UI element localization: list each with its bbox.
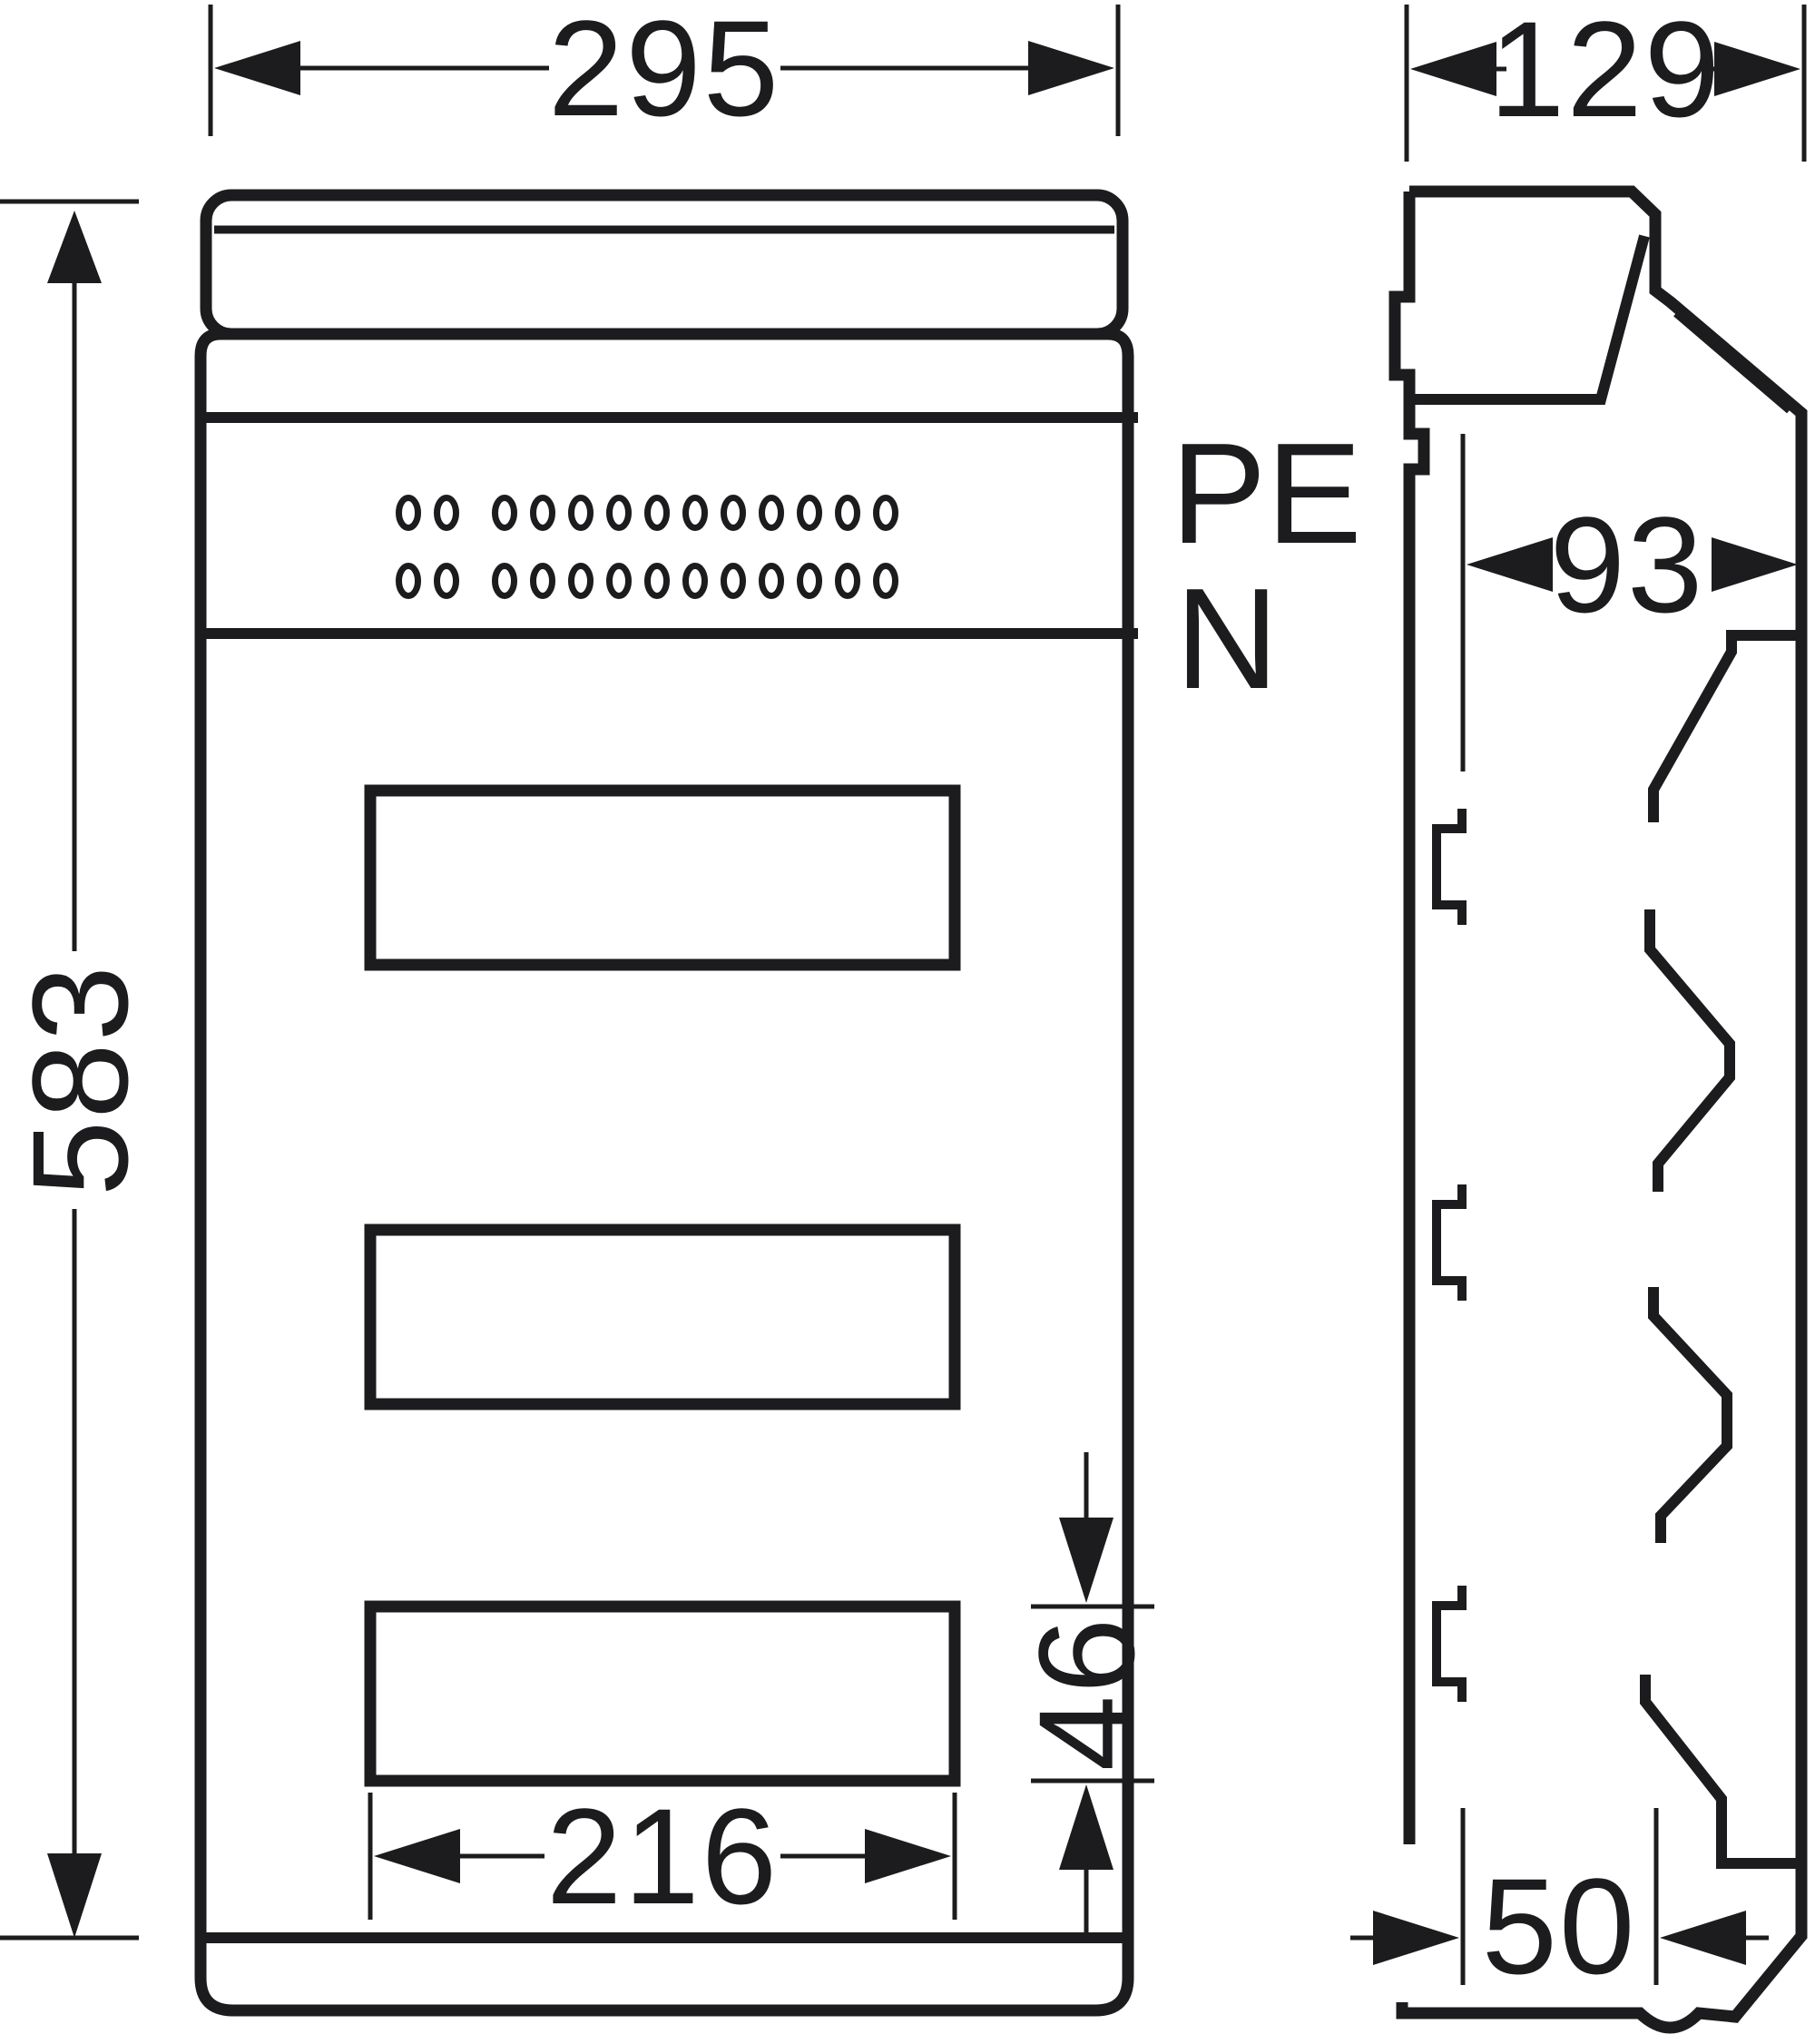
side-inner-ledge — [1409, 236, 1644, 399]
n-label: N — [1175, 559, 1279, 719]
front-lid — [206, 195, 1123, 334]
din-clip — [1437, 1184, 1462, 1301]
side-inner-shoulder-line — [1676, 313, 1790, 410]
dim-overall-height-value: 583 — [4, 964, 156, 1196]
side-zigzag-segment-3 — [1653, 1287, 1727, 1543]
dim-upper-depth: 93 — [1463, 434, 1798, 771]
dim-overall-depth: 129 — [1407, 0, 1804, 162]
device-cutout — [370, 1230, 955, 1404]
device-cutouts — [370, 791, 955, 1781]
side-zigzag-segment-4 — [1645, 1675, 1801, 1863]
device-cutout — [370, 1607, 955, 1781]
din-clip — [1437, 1586, 1462, 1702]
pe-label: PE — [1171, 414, 1362, 574]
dim-upper-depth-value: 93 — [1550, 488, 1705, 641]
dim-overall-width: 295 — [211, 0, 1118, 144]
side-view — [1395, 192, 1801, 2028]
dim-lower-depth-value: 50 — [1482, 1850, 1637, 2002]
technical-drawing-canvas: PE N 295 583 — [0, 0, 1815, 2044]
dim-cutout-width-value: 216 — [546, 1780, 779, 1932]
front-view — [201, 195, 1138, 2010]
din-clips — [1437, 809, 1462, 1702]
side-left-edge — [1395, 192, 1424, 1844]
dim-overall-depth-value: 129 — [1489, 0, 1722, 145]
side-zigzag-segment-1 — [1653, 635, 1801, 822]
side-zigzag-segment-2 — [1650, 909, 1730, 1192]
device-cutout — [370, 791, 955, 965]
dim-overall-height: 583 — [0, 201, 156, 1938]
din-clip — [1437, 809, 1462, 925]
dim-cutout-height-value: 46 — [1010, 1617, 1163, 1772]
dim-overall-width-value: 295 — [548, 0, 780, 144]
drawing-sheet: PE N 295 583 — [0, 0, 1815, 2044]
